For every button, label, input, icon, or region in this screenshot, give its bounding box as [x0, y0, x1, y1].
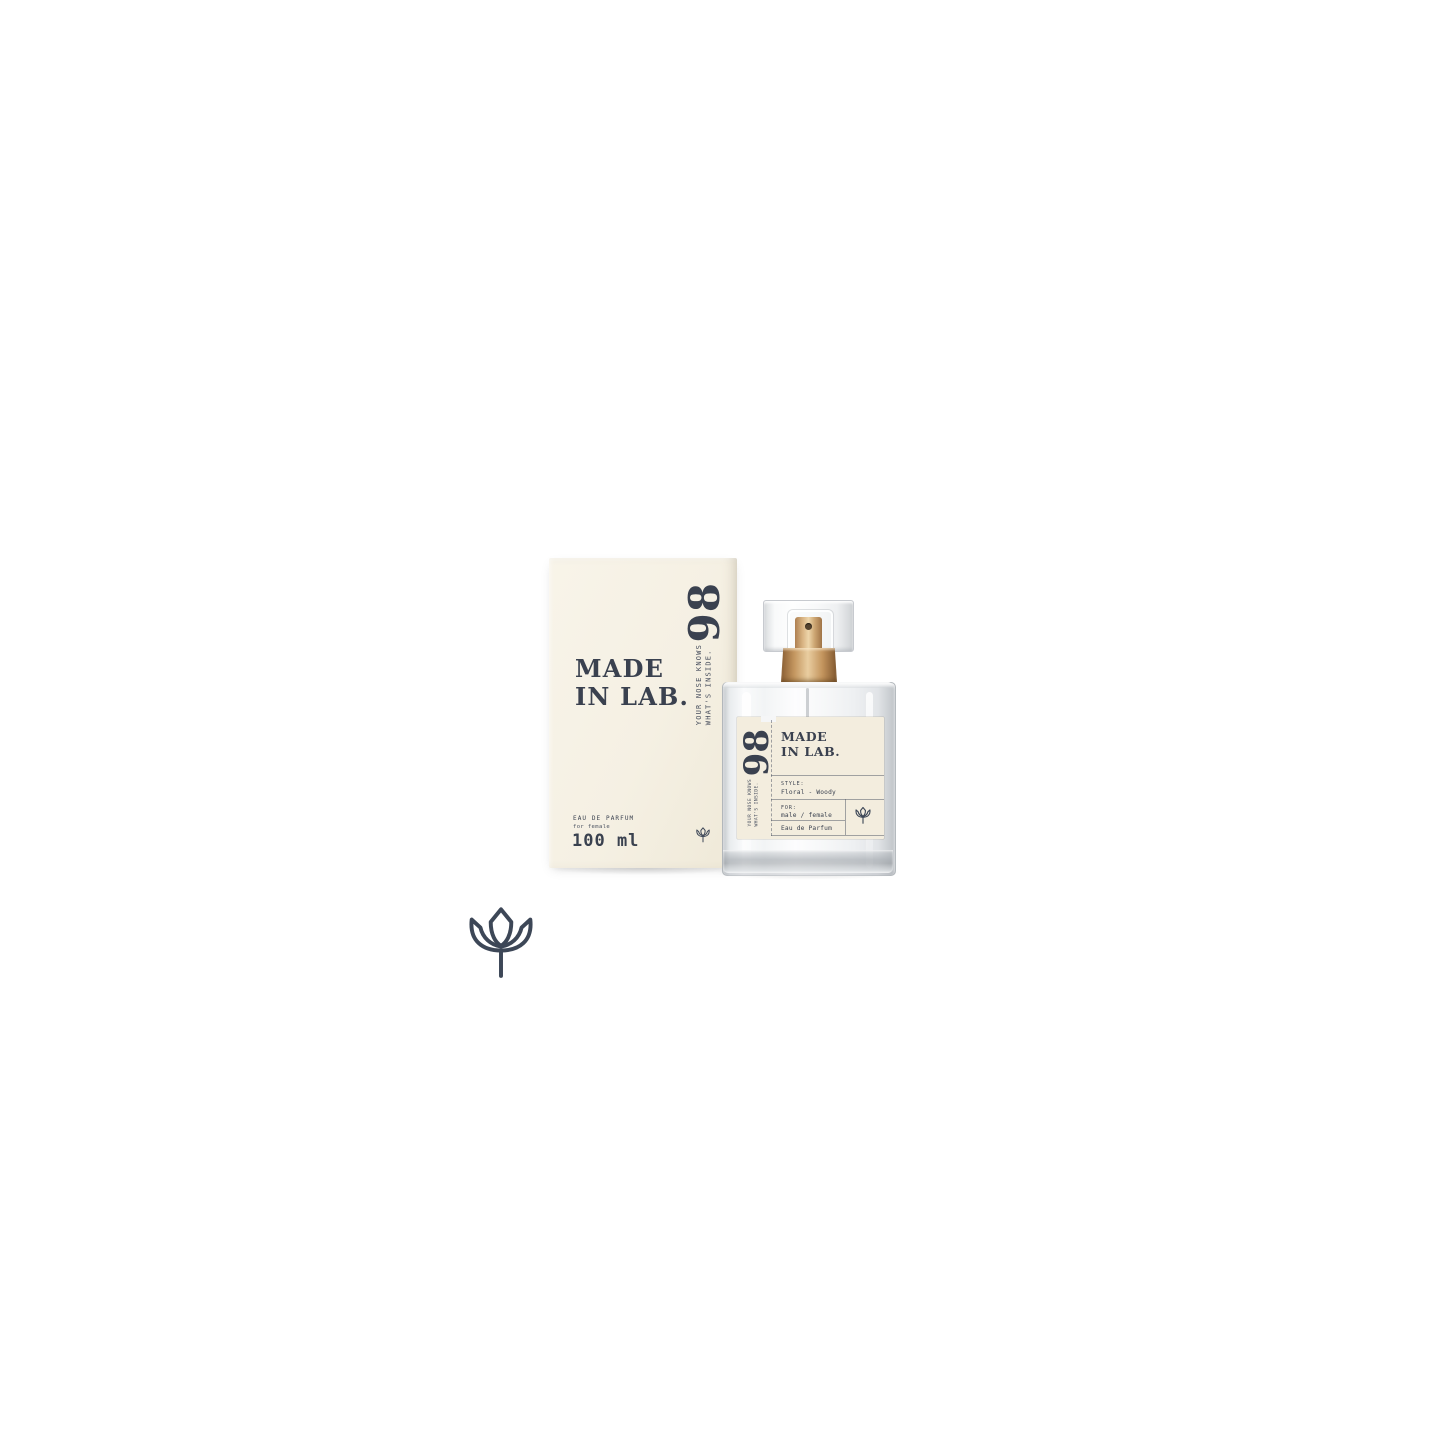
- label-rule-bottom: [771, 835, 884, 836]
- box-tagline-line2: WHAT'S INSIDE.: [704, 644, 713, 725]
- label-rule-3: [771, 820, 845, 821]
- label-brand-line1: MADE: [781, 729, 840, 744]
- label-variant-number: 98: [744, 729, 771, 776]
- product-photo: 98 YOUR NOSE KNOWS WHAT'S INSIDE. MADE I…: [0, 0, 1440, 1440]
- sprayer-nozzle: [795, 617, 822, 650]
- label-for-key: FOR:: [781, 805, 797, 811]
- box-brand-line2: IN LAB.: [575, 683, 689, 711]
- box-tagline: YOUR NOSE KNOWS WHAT'S INSIDE.: [695, 644, 714, 725]
- box-volume: 100 ml: [572, 831, 639, 851]
- label-rule-1: [771, 775, 884, 776]
- tulip-icon: [854, 805, 872, 825]
- bottle-glass-base: [723, 850, 893, 873]
- box-brand-line1: MADE: [575, 655, 689, 683]
- box-variant-number: 98: [688, 582, 722, 642]
- label-for-value: male / female: [781, 812, 832, 819]
- label-style-key: STYLE:: [781, 781, 804, 787]
- label-style-value: Floral - Woody: [781, 789, 836, 796]
- perfume-box: 98 YOUR NOSE KNOWS WHAT'S INSIDE. MADE I…: [549, 558, 737, 868]
- sprayer-hole: [805, 623, 812, 630]
- label-brand-wordmark: MADE IN LAB.: [781, 729, 840, 759]
- box-audience: for female: [573, 824, 610, 830]
- box-product-type: EAU DE PARFUM: [573, 815, 634, 822]
- label-tagline-line2: WHAT'S INSIDE.: [755, 779, 762, 827]
- brand-tulip-logo-icon: [463, 903, 539, 979]
- label-rule-2: [771, 799, 884, 800]
- label-product-type: Eau de Parfum: [781, 825, 832, 832]
- box-tagline-line1: YOUR NOSE KNOWS: [695, 644, 704, 725]
- label-tagline: YOUR NOSE KNOWS WHAT'S INSIDE.: [748, 779, 761, 827]
- bottle-label: 98 YOUR NOSE KNOWS WHAT'S INSIDE. MADE I…: [737, 717, 884, 839]
- label-brand-line2: IN LAB.: [781, 744, 840, 759]
- box-brand-wordmark: MADE IN LAB.: [575, 655, 689, 711]
- label-vertical-divider: [845, 799, 846, 835]
- sprayer-collar: [781, 648, 837, 682]
- label-notch: [761, 716, 776, 722]
- tulip-icon: [695, 825, 711, 844]
